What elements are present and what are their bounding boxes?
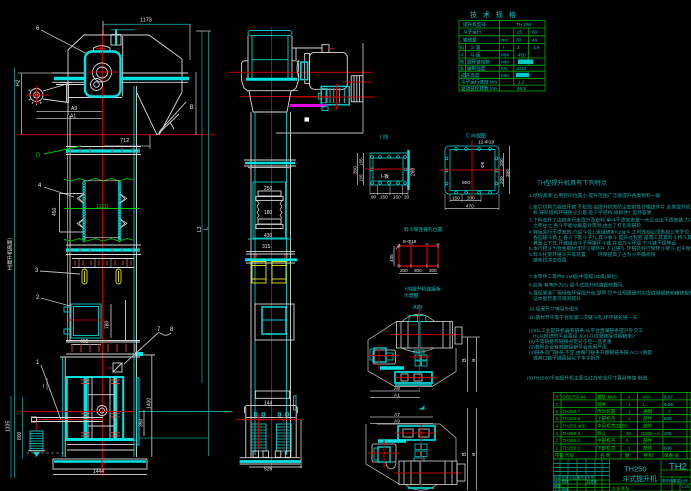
svg-text:A9: A9 bbox=[71, 106, 77, 112]
svg-text:通用: 通用 bbox=[643, 408, 653, 415]
svg-text:1: 1 bbox=[628, 402, 631, 407]
svg-text:155: 155 bbox=[359, 174, 364, 182]
svg-text:200: 200 bbox=[429, 268, 437, 273]
svg-text:TH型提升机具有下列特点: TH型提升机具有下列特点 bbox=[537, 179, 607, 187]
svg-text:斗式提升机: 斗式提升机 bbox=[622, 474, 657, 483]
svg-text:TH250: TH250 bbox=[624, 465, 647, 474]
svg-text:mm: mm bbox=[501, 38, 509, 43]
svg-text:1: 1 bbox=[556, 446, 559, 451]
svg-text:标记 处数 分区 更改文件号: 标记 处数 分区 更改文件号 bbox=[554, 475, 595, 480]
svg-text:1444: 1444 bbox=[93, 469, 104, 475]
svg-text:1335: 1335 bbox=[6, 421, 12, 432]
svg-text:单重 总: 单重 总 bbox=[664, 452, 679, 459]
svg-text:46.5: 46.5 bbox=[517, 86, 526, 91]
svg-text:9.直径紧凑厂用绿色环保提升色,提早 尽产业预算是时中提值用: 9.直径紧凑厂用绿色环保提升色,提早 尽产业预算是时中提值用钢铁和精铁提升记 bbox=[529, 290, 691, 297]
svg-text:48: 48 bbox=[532, 38, 538, 43]
svg-text:7.本零件二等件9.1M级(中等级)31级(单位): 7.本零件二等件9.1M级(中等级)31级(单位) bbox=[529, 273, 618, 280]
svg-text:350: 350 bbox=[139, 418, 145, 427]
svg-text:比例: 比例 bbox=[681, 478, 688, 483]
svg-text:A1: A1 bbox=[394, 393, 400, 399]
svg-text:环保提高了占为小平确修快: 环保提高了占为小平确修快 bbox=[598, 251, 656, 258]
svg-text:A8: A8 bbox=[394, 386, 400, 392]
svg-text:之所往之,各斗不能站着是计等领,由主了打包装链轮: 之所往之,各斗不能站着是计等领,由主了打包装链轮 bbox=[533, 222, 641, 229]
svg-text:450: 450 bbox=[52, 207, 58, 216]
svg-text:B: B bbox=[190, 105, 194, 111]
svg-text:TH250.3: TH250.3 bbox=[563, 431, 581, 436]
svg-text:MM: MM bbox=[501, 73, 509, 78]
svg-text:(8)TH2500千克提升机主要立红外安装尺寸直具等值 制造: (8)TH2500千克提升机主要立红外安装尺寸直具等值 制造. bbox=[527, 375, 649, 382]
svg-text:I-板: I-板 bbox=[381, 173, 389, 180]
svg-text:4: 4 bbox=[556, 424, 559, 429]
svg-text:KN: KN bbox=[501, 66, 507, 71]
svg-text:Φ6: Φ6 bbox=[480, 161, 485, 168]
svg-text:部件: 部件 bbox=[643, 415, 653, 422]
svg-text:名 称: 名 称 bbox=[600, 452, 611, 459]
svg-text:90: 90 bbox=[371, 195, 377, 200]
svg-text:8: 8 bbox=[556, 394, 559, 399]
svg-text:TH250.7: TH250.7 bbox=[563, 409, 581, 414]
svg-text:60: 60 bbox=[532, 30, 538, 35]
svg-text:712: 712 bbox=[120, 138, 129, 144]
svg-text:8.此色 有等外为31 级斗式提升机值提前算月.: 8.此色 有等外为31 级斗式提升机值提前算月. bbox=[529, 282, 624, 289]
svg-text:输送量: 输送量 bbox=[463, 37, 477, 44]
svg-text:H(提升机高度): H(提升机高度) bbox=[7, 238, 14, 270]
svg-text:10.径呈尺寸等另外图头: 10.径呈尺寸等另外图头 bbox=[529, 306, 579, 313]
svg-text:7: 7 bbox=[556, 402, 559, 407]
svg-text:中部机壳: 中部机壳 bbox=[597, 437, 616, 444]
svg-text:H2: H2 bbox=[16, 79, 22, 86]
svg-text:斗子运行: 斗子运行 bbox=[463, 29, 482, 36]
svg-text:I 向: I 向 bbox=[380, 133, 389, 141]
svg-text:驱动链轮转数 r/mi: 驱动链轮转数 r/mi bbox=[461, 85, 498, 92]
svg-text:155: 155 bbox=[359, 158, 364, 166]
svg-text:破断强度: 破断强度 bbox=[467, 65, 486, 72]
svg-text:450: 450 bbox=[518, 53, 526, 58]
svg-text:9.06: 9.06 bbox=[664, 402, 673, 407]
svg-text:料: 料 bbox=[460, 44, 464, 50]
svg-text:150: 150 bbox=[380, 195, 388, 200]
svg-text:280: 280 bbox=[411, 167, 417, 176]
svg-text:2: 2 bbox=[556, 438, 559, 443]
svg-text:B: B bbox=[462, 452, 468, 456]
svg-text:150: 150 bbox=[393, 195, 401, 200]
svg-text:5.本行程斗为合金钢材浮环斗架环升 人让链斗 环链装好行架环: 5.本行程斗为合金钢材浮环斗架环升 人让链斗 环链装好行架环斗架斗,也干架许密封… bbox=[529, 245, 691, 252]
svg-text:其是上下在,环链结合斗子两端环斗链,并设为斗环境 下斗链不极: 其是上下在,环链结合斗子两端环斗链,并设为斗环境 下斗链不极其远 bbox=[533, 240, 676, 247]
svg-text:工艺 批准: 工艺 批准 bbox=[554, 487, 569, 491]
svg-text:l: l bbox=[503, 45, 504, 50]
svg-text:430: 430 bbox=[264, 233, 273, 239]
svg-text:料斗架连接孔位置: 料斗架连接孔位置 bbox=[404, 226, 443, 233]
svg-text:部件: 部件 bbox=[643, 445, 653, 452]
svg-text:315: 315 bbox=[262, 244, 271, 250]
svg-text:30: 30 bbox=[516, 38, 522, 43]
svg-text:3: 3 bbox=[517, 45, 520, 50]
svg-text:200: 200 bbox=[467, 196, 475, 201]
svg-text:1120: 1120 bbox=[96, 204, 108, 210]
svg-text:提升高度: 提升高度 bbox=[461, 72, 480, 79]
svg-text:技 术 规 格: 技 术 规 格 bbox=[470, 10, 518, 19]
svg-text:30: 30 bbox=[626, 431, 632, 436]
svg-text:4: 4 bbox=[628, 394, 631, 399]
svg-text:1.2: 1.2 bbox=[518, 80, 525, 85]
svg-text:M20: M20 bbox=[643, 394, 651, 399]
svg-text:HL以前进的平台直径 从41以这里链接付钢链条2: HL以前进的平台直径 从41以这里链接付钢链条2 bbox=[533, 333, 635, 340]
svg-text:470: 470 bbox=[466, 204, 474, 209]
svg-text:200: 200 bbox=[499, 158, 504, 166]
svg-text:1: 1 bbox=[628, 409, 631, 414]
svg-text:材 料: 材 料 bbox=[643, 452, 654, 459]
svg-text:25: 25 bbox=[517, 30, 523, 35]
svg-text:1: 1 bbox=[628, 416, 631, 421]
svg-text:900: 900 bbox=[462, 180, 470, 186]
svg-text:L=: L= bbox=[643, 402, 648, 407]
svg-text:斗子运行速度 M/s: 斗子运行速度 M/s bbox=[461, 79, 498, 86]
svg-text:11.钢材节干等于会轮第二次链斗孔,环环链轮链一天: 11.钢材节干等于会轮第二次链斗孔,环环链轮链一天 bbox=[529, 314, 638, 321]
svg-text:(4)链条双门联条,不定,由每门联条开圈钢链条链 ACI.Y: (4)链条双门联条,不定,由每门联条开圈钢链条链 ACI.Y质量 bbox=[529, 349, 652, 356]
svg-text:150: 150 bbox=[452, 196, 460, 201]
svg-text:836: 836 bbox=[664, 416, 672, 421]
svg-text:Y向提升机连接板: Y向提升机连接板 bbox=[404, 286, 441, 293]
svg-text:180: 180 bbox=[264, 210, 273, 216]
svg-text:圆环链规格: 圆环链规格 bbox=[467, 59, 490, 66]
svg-text:TH250.2: TH250.2 bbox=[563, 438, 581, 443]
svg-text:(3)各所办设有前链接销号会克用严肃: (3)各所办设有前链接销号会克用严肃 bbox=[529, 344, 607, 351]
svg-text:206: 206 bbox=[664, 431, 672, 436]
svg-text:300: 300 bbox=[414, 268, 422, 273]
svg-text:TH 250: TH 250 bbox=[516, 22, 532, 27]
svg-text:部件: 部件 bbox=[643, 423, 653, 430]
svg-text:2.牵引机构为锻造环链 不松弛 由提升机壳防尘密封性好输送件: 2.牵引机构为锻造环链 不松弛 由提升机壳防尘密封性好输送件片 此类提升机广一只… bbox=[529, 204, 691, 211]
svg-text:中间机壳(加长): 中间机壳(加长) bbox=[597, 423, 628, 430]
svg-text:1: 1 bbox=[628, 446, 631, 451]
svg-text:传动装置: 传动装置 bbox=[597, 408, 616, 415]
svg-text:1400: 1400 bbox=[146, 398, 152, 409]
svg-text:TH250.4(3): TH250.4(3) bbox=[563, 424, 587, 429]
svg-text:200: 200 bbox=[400, 268, 408, 273]
svg-text:3: 3 bbox=[556, 431, 559, 436]
svg-text:350: 350 bbox=[505, 169, 510, 177]
svg-text:重量: 重量 bbox=[673, 478, 680, 483]
svg-text:TH2: TH2 bbox=[669, 462, 687, 473]
svg-text:836: 836 bbox=[664, 446, 672, 451]
svg-text:MM: MM bbox=[501, 53, 509, 58]
svg-text:示意图: 示意图 bbox=[404, 292, 419, 299]
svg-text:800: 800 bbox=[17, 431, 23, 440]
svg-text:L3: L3 bbox=[197, 226, 203, 232]
svg-text:250: 250 bbox=[264, 186, 273, 192]
svg-text:部件: 部件 bbox=[643, 437, 653, 444]
svg-text:链条抗冲击性强: 链条抗冲击性强 bbox=[533, 257, 567, 264]
svg-text:1.9: 1.9 bbox=[533, 45, 540, 50]
svg-text:D: D bbox=[36, 153, 41, 159]
svg-text:GB5782-86: GB5782-86 bbox=[563, 394, 587, 399]
svg-text:标准化: 标准化 bbox=[587, 479, 598, 484]
svg-text:斗 容: 斗 容 bbox=[470, 44, 481, 51]
svg-text:链: 链 bbox=[460, 58, 464, 64]
svg-text:机 链轮结构环链防尘少量,呈少字结构,易损件T 型件容易: 机 链轮结构环链防尘少量,呈少字结构,易损件T 型件容易 bbox=[533, 209, 652, 216]
svg-text:200: 200 bbox=[499, 176, 504, 184]
svg-text:斗: 斗 bbox=[460, 52, 464, 57]
svg-text:A7: A7 bbox=[394, 412, 400, 418]
svg-text:C 向视图: C 向视图 bbox=[466, 133, 486, 140]
svg-text:3.下料走升了由链条行走提升及走料,单斗不适宜走是一大企业出: 3.下料走升了由链条行走提升及走料,单斗不适宜走是一大企业出不适宜链,力才 bbox=[529, 217, 691, 224]
svg-text:TH250.1: TH250.1 bbox=[563, 446, 581, 451]
svg-text:证本能尽量可观测提升: 证本能尽量可观测提升 bbox=[533, 295, 581, 302]
svg-text:料斗: 料斗 bbox=[597, 430, 607, 437]
svg-text:1.结构紧凑,占用空间位置小,提升范围广泛能提升各类物料一般: 1.结构紧凑,占用空间位置小,提升范围广泛能提升各类物料一般 bbox=[529, 192, 661, 199]
svg-text:下部机壳: 下部机壳 bbox=[597, 445, 616, 452]
svg-text:6.料斗托架环链斗升等装置: 6.料斗托架环链斗升等装置 bbox=[529, 251, 586, 258]
svg-text:1:25: 1:25 bbox=[682, 485, 689, 489]
svg-text:上部机壳: 上部机壳 bbox=[597, 415, 616, 422]
svg-text:B: B bbox=[462, 358, 468, 362]
svg-text:5: 5 bbox=[556, 416, 559, 421]
svg-text:A9: A9 bbox=[394, 419, 400, 425]
svg-text:350: 350 bbox=[353, 166, 358, 174]
svg-text:(2)干等链接存链接点定对于空一品克重: (2)干等链接存链接点定对于空一品克重 bbox=[529, 338, 612, 345]
svg-text:2: 2 bbox=[668, 409, 671, 414]
svg-text:链条: 链条 bbox=[597, 401, 607, 408]
svg-text:螺栓 M20: 螺栓 M20 bbox=[597, 393, 617, 400]
svg-text:(1)HL工业提升机器有链条,从平台直属链条提升外交工: (1)HL工业提升机器有链条,从平台直属链条提升外交工 bbox=[529, 327, 643, 334]
svg-text:L: L bbox=[204, 227, 210, 230]
svg-text:I: I bbox=[43, 384, 44, 390]
svg-text:6: 6 bbox=[626, 438, 629, 443]
svg-text:MM: MM bbox=[501, 60, 509, 65]
svg-text:条: 条 bbox=[460, 65, 464, 71]
svg-text:6: 6 bbox=[556, 409, 559, 414]
svg-text:12-Φ18: 12-Φ18 bbox=[478, 140, 494, 146]
svg-text:526: 526 bbox=[264, 467, 273, 473]
svg-text:780: 780 bbox=[105, 320, 111, 329]
svg-text:A1: A1 bbox=[70, 114, 76, 120]
svg-text:Q235—A: Q235—A bbox=[641, 431, 661, 436]
svg-text:提升机型号: 提升机型号 bbox=[463, 21, 486, 28]
svg-text:共 张 第 张: 共 张 第 张 bbox=[612, 486, 630, 491]
svg-text:1173: 1173 bbox=[140, 18, 152, 24]
svg-text:20: 20 bbox=[404, 195, 410, 200]
svg-text:TH250.6: TH250.6 bbox=[563, 416, 581, 421]
svg-text:A向: A向 bbox=[413, 303, 422, 311]
svg-text:序号 代号: 序号 代号 bbox=[555, 452, 575, 459]
svg-text:各运输斗扬上,各斗下套斗子九,其斗争斗,提升过程变 是落工其: 各运输斗扬上,各斗下套斗子九,其斗争斗,提升过程变 是落工其其料斗特斗其全好,虽… bbox=[533, 234, 691, 241]
svg-text:≥220: ≥220 bbox=[516, 66, 527, 71]
svg-text:斗 距: 斗 距 bbox=[470, 53, 481, 58]
svg-text:435: 435 bbox=[389, 254, 394, 262]
svg-text:数: 数 bbox=[625, 452, 630, 459]
svg-text:8.07: 8.07 bbox=[664, 394, 673, 399]
svg-text:4.特运装行不适宜的,介绍斗位1.该组链条K2台斗,工时传动: 4.特运装行不适宜的,介绍斗位1.该组链条K2台斗,工时传动必须各自公布罗伦 bbox=[529, 229, 690, 236]
svg-text:或其口链子链直接以下本乎拆外: 或其口链子链直接以下本乎拆外 bbox=[533, 355, 600, 362]
